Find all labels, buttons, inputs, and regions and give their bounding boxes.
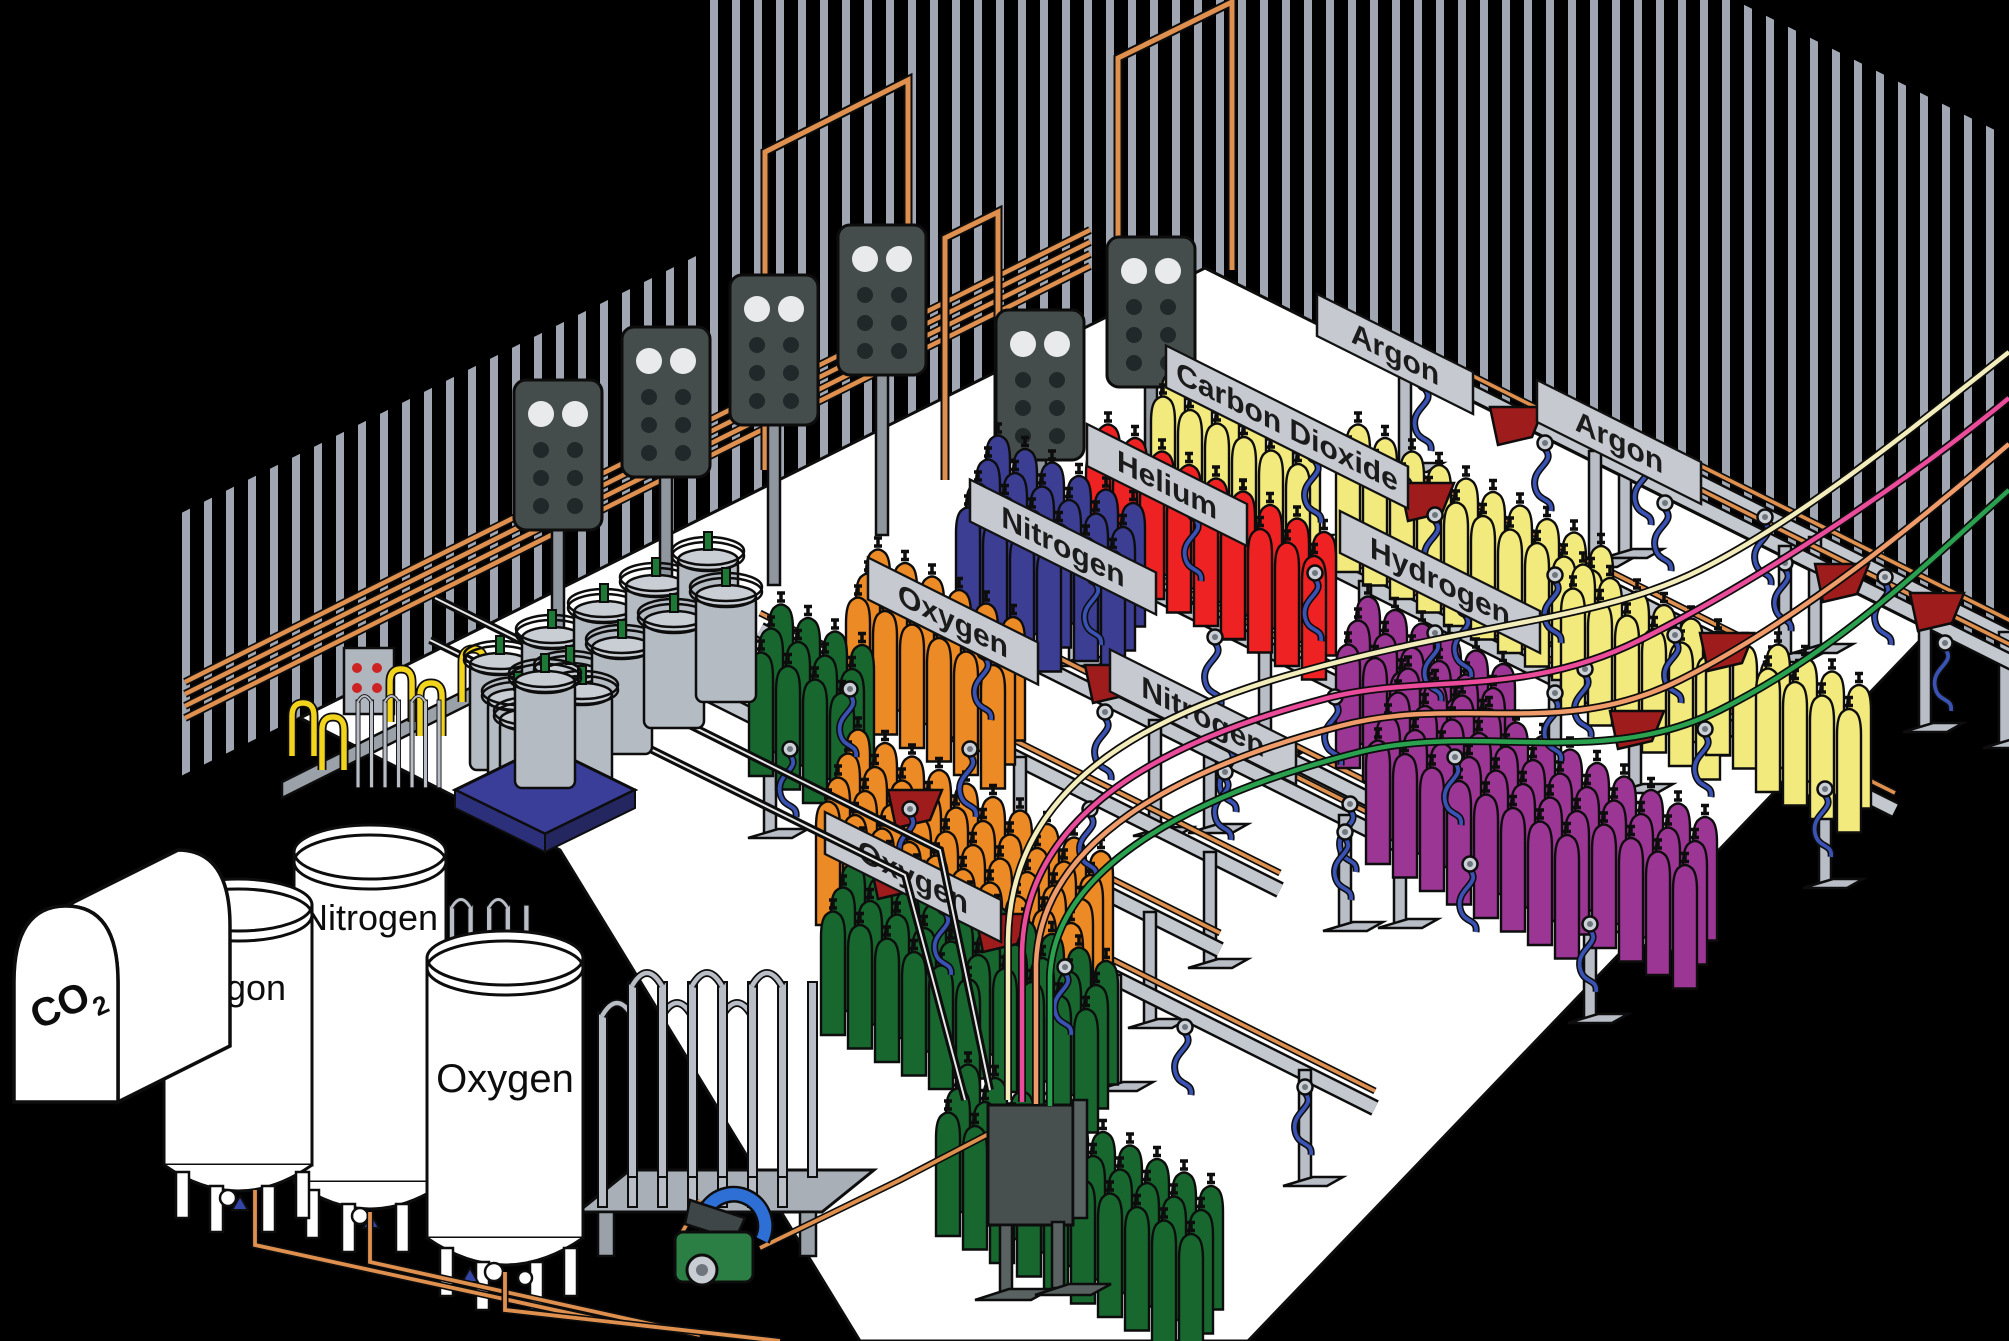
isometric-scene: Oxygen Nitrogen Helium Carbon Dioxide Ar… xyxy=(0,0,2009,1341)
gas-plant-illustration: Oxygen Nitrogen Helium Carbon Dioxide Ar… xyxy=(0,0,2009,1341)
oxygen-tank-label: Oxygen xyxy=(436,1057,574,1101)
oxygen-bulk-tank: Oxygen xyxy=(427,931,583,1310)
nitrogen-bulk-tank: Nitrogen xyxy=(294,825,446,1252)
nitrogen-tank-label: Nitrogen xyxy=(302,897,438,938)
